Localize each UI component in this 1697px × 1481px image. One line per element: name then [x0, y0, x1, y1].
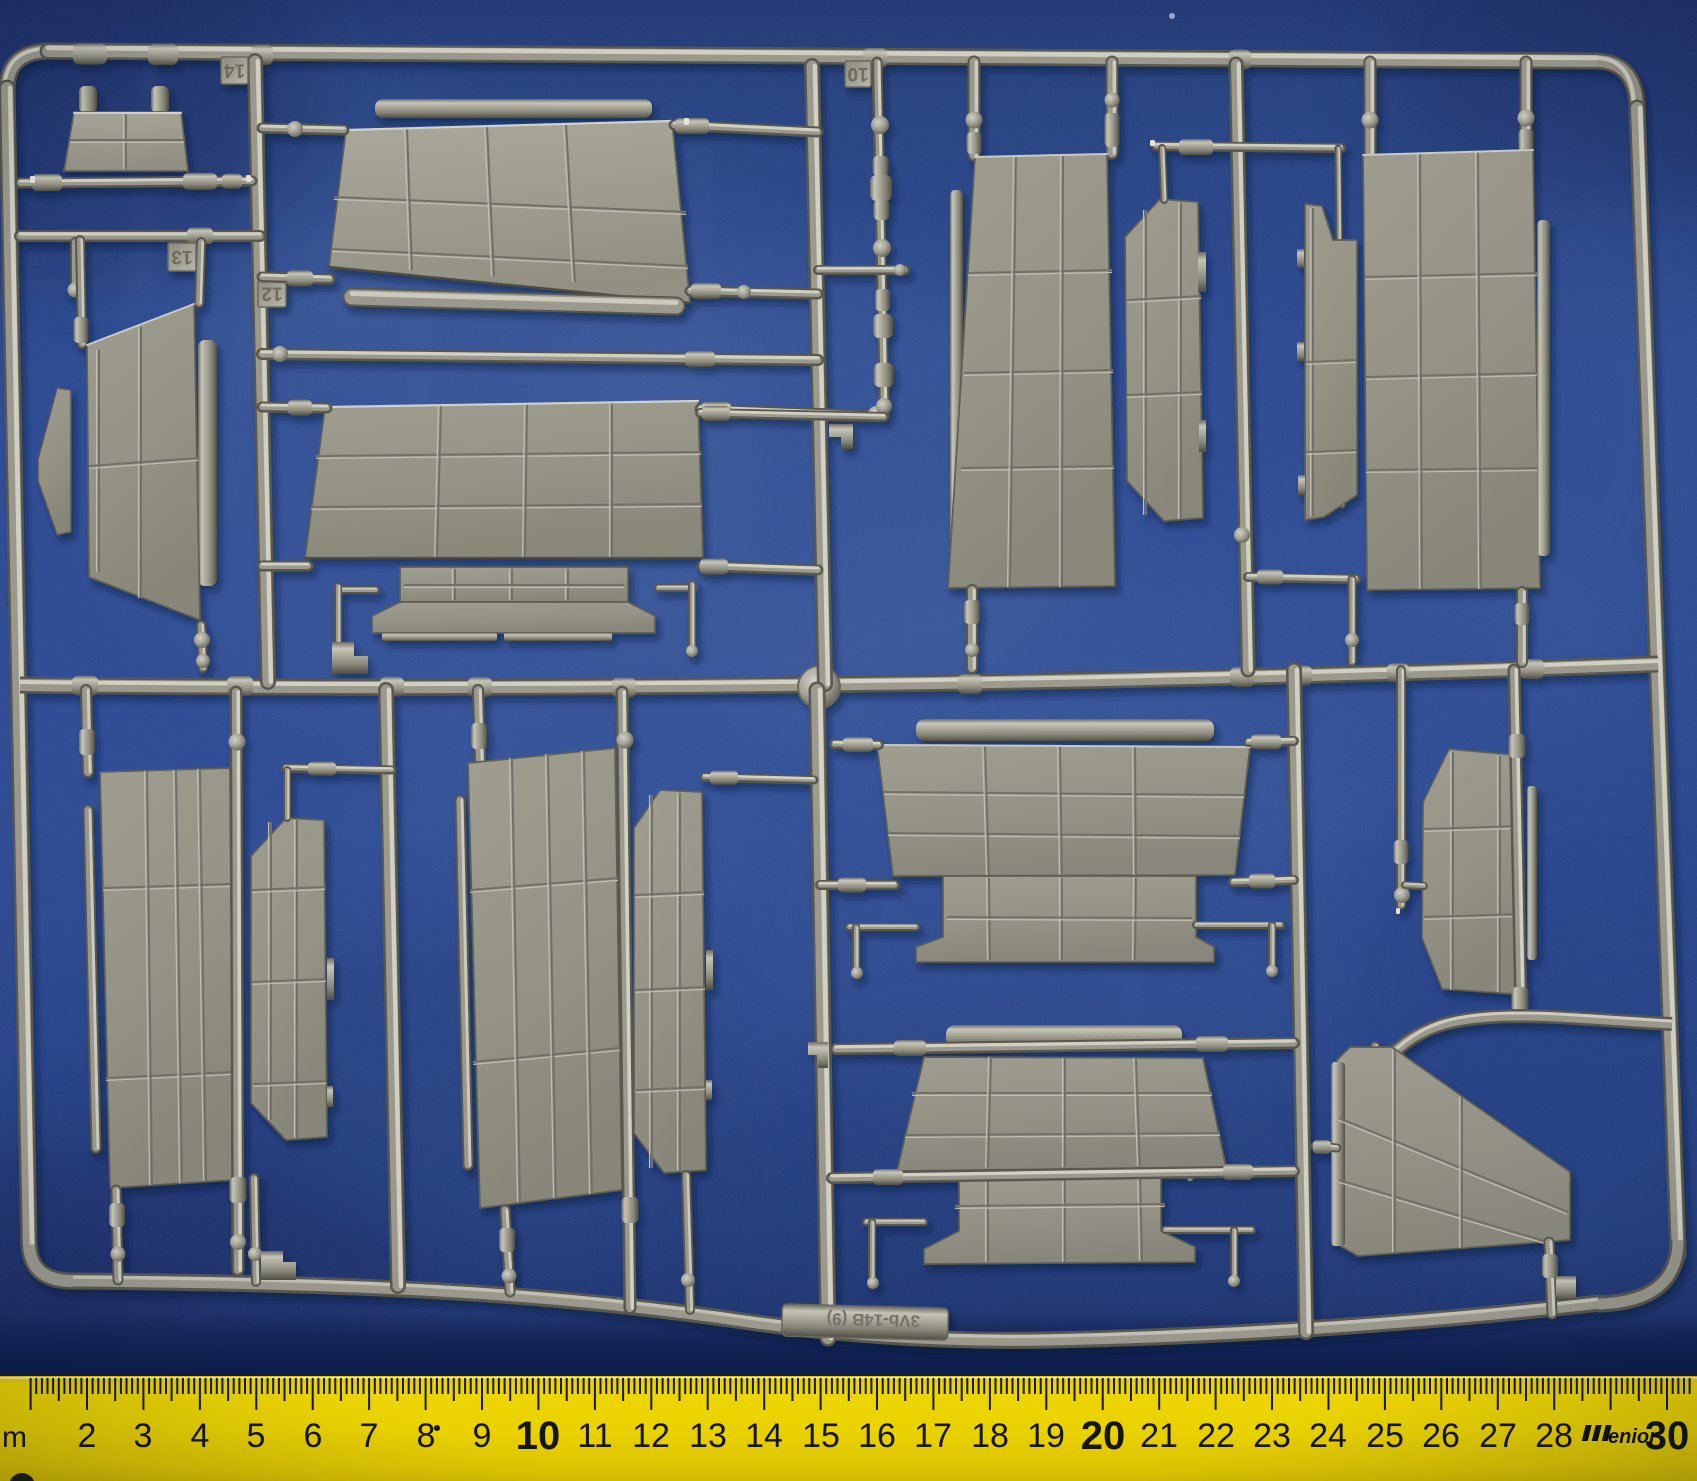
svg-text:7: 7	[360, 1417, 379, 1455]
svg-text:14: 14	[224, 60, 246, 81]
svg-text:12: 12	[632, 1417, 670, 1455]
svg-text:20: 20	[1081, 1414, 1126, 1458]
svg-text:16: 16	[858, 1417, 896, 1455]
svg-text:4: 4	[191, 1417, 210, 1455]
svg-text:6: 6	[304, 1417, 323, 1455]
svg-text:11: 11	[577, 1417, 612, 1455]
svg-text:3Vb-14B (9): 3Vb-14B (9)	[826, 1309, 920, 1330]
svg-text:5: 5	[247, 1417, 266, 1455]
svg-text:10: 10	[847, 63, 868, 84]
svg-text:13: 13	[689, 1417, 727, 1455]
svg-text:3: 3	[134, 1417, 153, 1455]
svg-text:19: 19	[1027, 1417, 1065, 1455]
svg-text:15: 15	[802, 1417, 840, 1455]
svg-text:17: 17	[914, 1417, 952, 1455]
svg-text:22: 22	[1197, 1417, 1235, 1455]
svg-text:23: 23	[1253, 1417, 1291, 1455]
svg-text:26: 26	[1422, 1417, 1460, 1455]
svg-text:27: 27	[1479, 1417, 1517, 1455]
svg-text:18: 18	[971, 1417, 1009, 1455]
svg-text:13: 13	[171, 246, 192, 267]
svg-text:10: 10	[516, 1414, 561, 1458]
svg-text:m: m	[2, 1421, 27, 1454]
svg-text:28: 28	[1535, 1417, 1573, 1455]
svg-text:enior: enior	[1608, 1426, 1658, 1448]
svg-text:24: 24	[1309, 1417, 1347, 1455]
svg-text:21: 21	[1140, 1417, 1178, 1455]
svg-text:12: 12	[261, 283, 282, 304]
svg-text:8: 8	[417, 1417, 436, 1455]
svg-text:9: 9	[473, 1417, 492, 1455]
svg-text:2: 2	[78, 1417, 97, 1455]
svg-text:25: 25	[1366, 1417, 1404, 1455]
svg-text:14: 14	[745, 1417, 783, 1455]
